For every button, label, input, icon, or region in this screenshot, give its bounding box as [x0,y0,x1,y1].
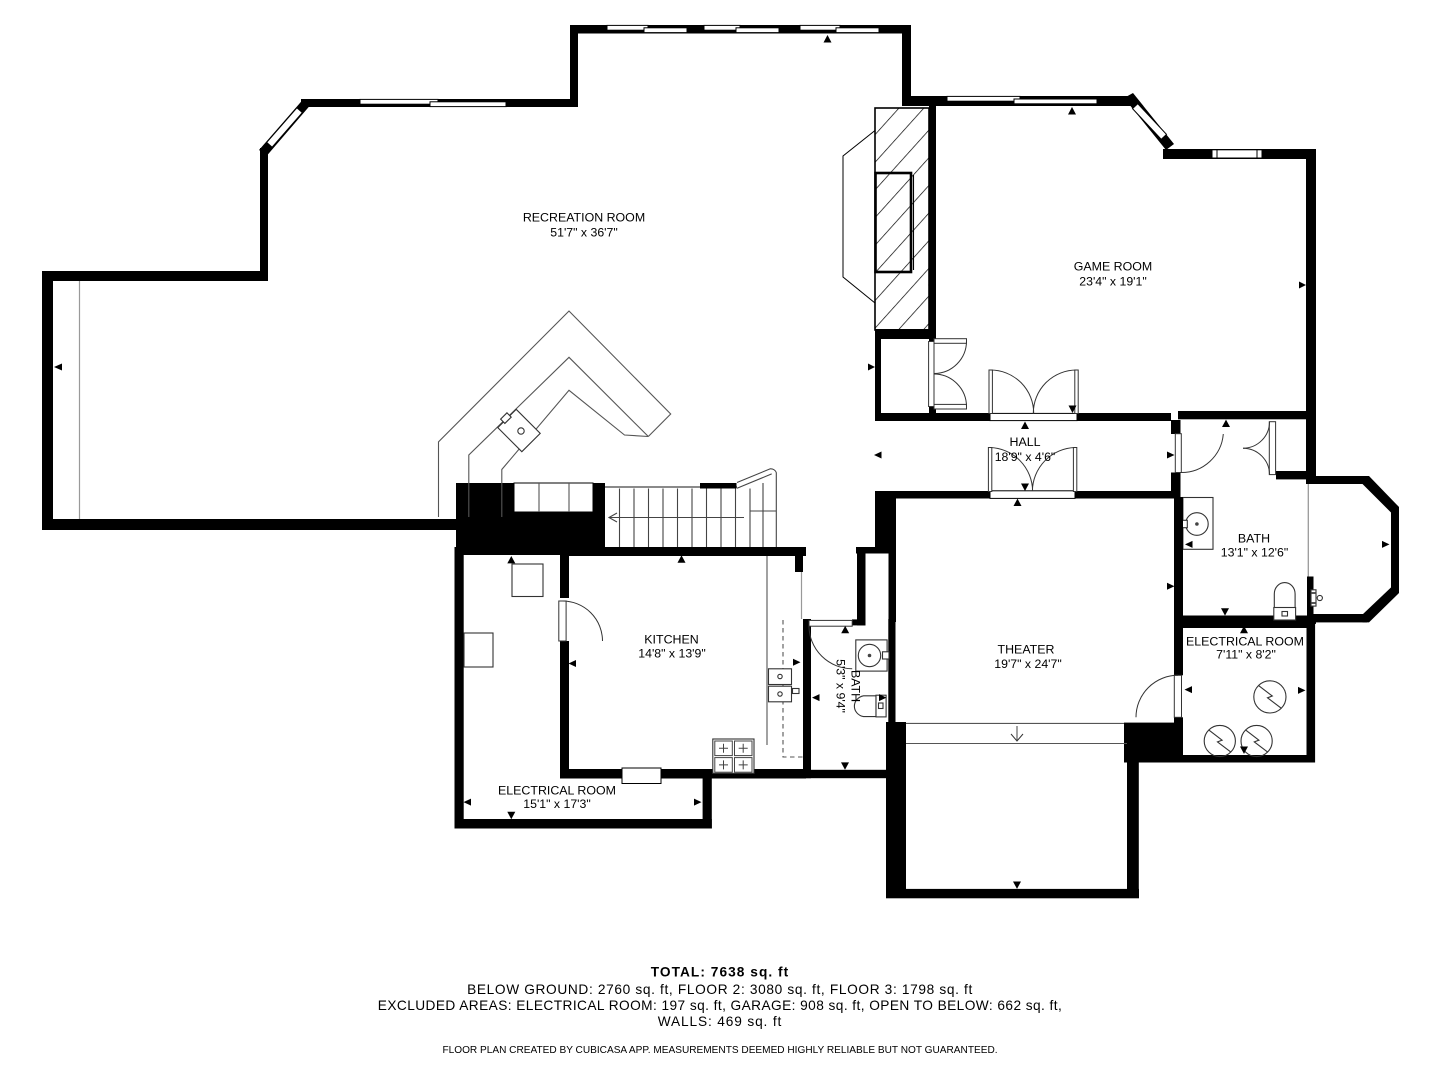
svg-text:WALLS: 469 sq. ft: WALLS: 469 sq. ft [658,1014,782,1029]
svg-text:ELECTRICAL ROOM: ELECTRICAL ROOM [1186,635,1304,649]
svg-text:TOTAL: 7638 sq. ft: TOTAL: 7638 sq. ft [651,965,790,980]
svg-text:19'7" x 24'7": 19'7" x 24'7" [994,657,1061,671]
svg-text:BATH: BATH [849,670,863,702]
svg-text:7'11" x 8'2": 7'11" x 8'2" [1216,648,1276,662]
svg-text:13'1" x 12'6": 13'1" x 12'6" [1221,546,1288,560]
svg-text:14'8" x 13'9": 14'8" x 13'9" [638,647,705,661]
svg-text:23'4" x 19'1": 23'4" x 19'1" [1079,275,1146,289]
svg-text:51'7" x 36'7": 51'7" x 36'7" [550,226,617,240]
svg-text:FLOOR PLAN CREATED BY CUBICASA: FLOOR PLAN CREATED BY CUBICASA APP. MEAS… [442,1045,997,1056]
svg-text:GAME ROOM: GAME ROOM [1074,260,1152,274]
svg-text:THEATER: THEATER [998,643,1055,657]
svg-text:RECREATION ROOM: RECREATION ROOM [523,211,645,225]
svg-text:15'1" x 17'3": 15'1" x 17'3" [523,797,590,811]
svg-text:18'9" x 4'6": 18'9" x 4'6" [995,450,1056,464]
svg-text:HALL: HALL [1010,435,1041,449]
svg-text:KITCHEN: KITCHEN [644,633,698,647]
svg-text:EXCLUDED AREAS: ELECTRICAL ROO: EXCLUDED AREAS: ELECTRICAL ROOM: 197 sq.… [378,998,1062,1013]
svg-text:ELECTRICAL ROOM: ELECTRICAL ROOM [498,784,616,798]
svg-text:5'3" x 9'4": 5'3" x 9'4" [834,659,848,713]
svg-text:BATH: BATH [1238,532,1270,546]
svg-text:BELOW GROUND: 2760 sq. ft, FLO: BELOW GROUND: 2760 sq. ft, FLOOR 2: 3080… [467,982,973,997]
